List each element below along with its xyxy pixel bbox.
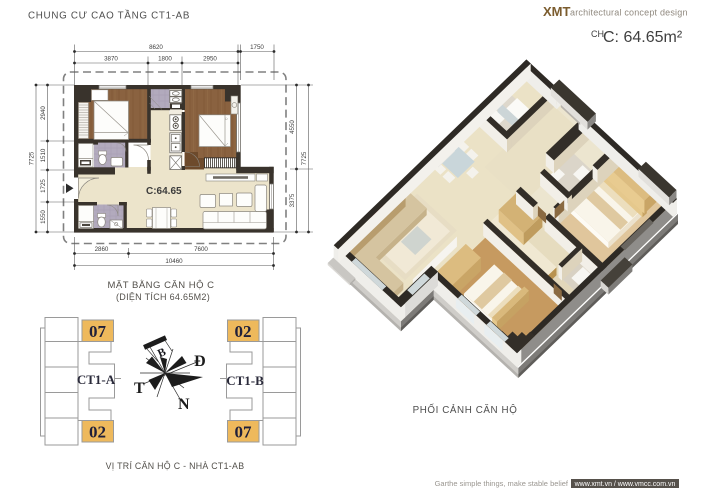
svg-text:T: T [134, 380, 145, 397]
svg-text:1550: 1550 [40, 210, 47, 224]
svg-text:3870: 3870 [104, 56, 118, 63]
svg-text:www.xmt.vn / www.vmcc.com.vn: www.xmt.vn / www.vmcc.com.vn [574, 481, 676, 488]
svg-text:B: B [156, 346, 168, 360]
svg-text:MẶT BẰNG CĂN HỘ C: MẶT BẰNG CĂN HỘ C [107, 280, 214, 291]
svg-text:C:64.65: C:64.65 [146, 186, 182, 197]
svg-text:07: 07 [89, 322, 107, 341]
svg-text:1750: 1750 [250, 44, 264, 51]
svg-text:CT1-A: CT1-A [77, 372, 116, 387]
svg-text:1800: 1800 [158, 56, 172, 63]
svg-text:N: N [178, 396, 190, 413]
svg-text:10460: 10460 [165, 258, 183, 265]
svg-text:1510: 1510 [40, 148, 47, 162]
svg-text:7725: 7725 [29, 151, 36, 165]
svg-text:07: 07 [235, 423, 253, 442]
svg-text:Garthe simple things, make sta: Garthe simple things, make stable belief [435, 479, 569, 488]
svg-text:CHUNG CƯ CAO TẦNG CT1-AB: CHUNG CƯ CAO TẦNG CT1-AB [28, 11, 190, 22]
svg-text:2940: 2940 [40, 106, 47, 120]
svg-text:(DIỆN TÍCH 64.65M2): (DIỆN TÍCH 64.65M2) [116, 292, 210, 302]
svg-text:8620: 8620 [149, 44, 163, 51]
svg-text:XMT: XMT [543, 4, 571, 19]
svg-text:VỊ TRÍ CĂN HỘ C - NHÀ CT1-AB: VỊ TRÍ CĂN HỘ C - NHÀ CT1-AB [106, 461, 245, 471]
svg-text:4550: 4550 [289, 120, 296, 134]
svg-text:C: 64.65m²: C: 64.65m² [603, 29, 683, 46]
svg-text:2860: 2860 [95, 246, 109, 253]
svg-text:Đ: Đ [194, 353, 206, 370]
svg-text:7725: 7725 [301, 151, 308, 165]
svg-text:architectural concept design: architectural concept design [570, 8, 688, 18]
svg-text:3375: 3375 [289, 193, 296, 207]
svg-text:1725: 1725 [40, 179, 47, 193]
svg-text:PHỐI CẢNH CĂN HỘ: PHỐI CẢNH CĂN HỘ [413, 404, 518, 416]
svg-text:CT1-B: CT1-B [226, 373, 264, 388]
svg-text:7600: 7600 [194, 246, 208, 253]
svg-text:2950: 2950 [203, 56, 217, 63]
svg-text:02: 02 [89, 423, 106, 442]
svg-text:02: 02 [235, 322, 252, 341]
